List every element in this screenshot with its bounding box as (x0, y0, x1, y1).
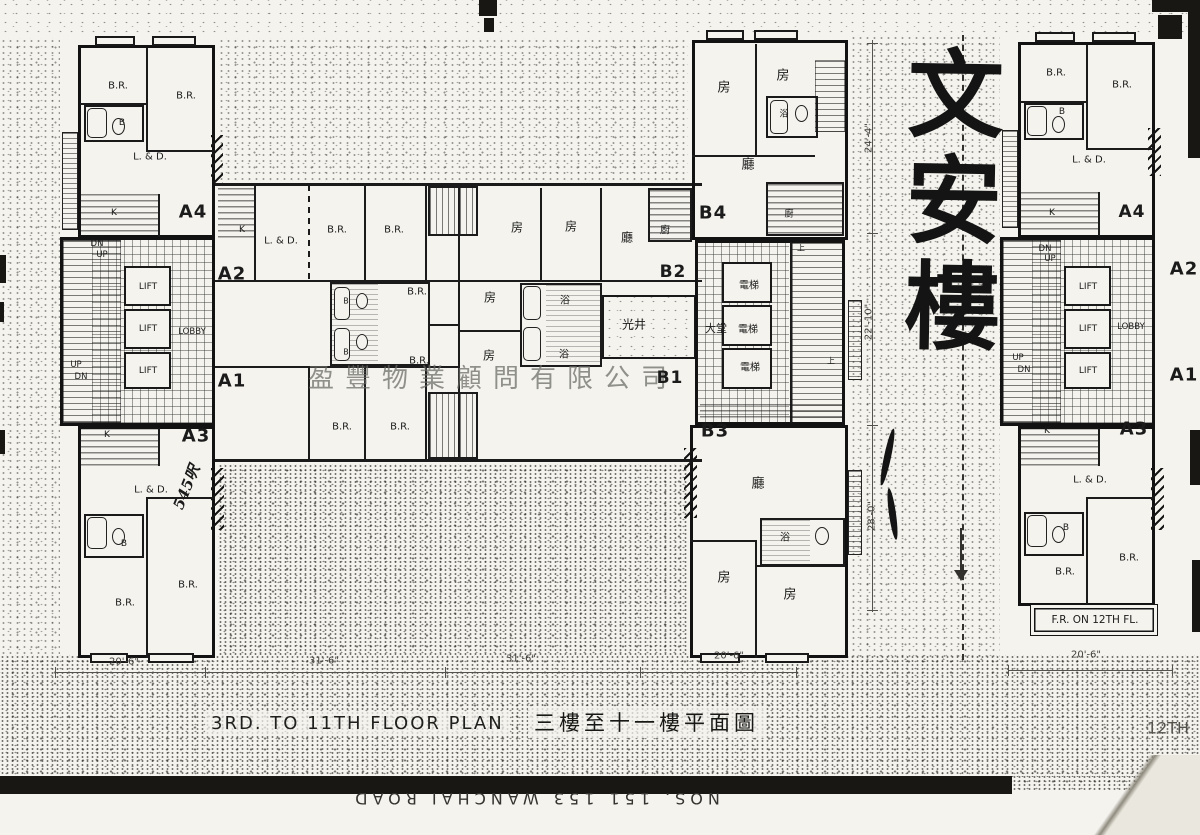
rp-br1: B.R. (1046, 68, 1066, 79)
b3-liv: 廳 (751, 473, 764, 492)
a4-ld: L. & D. (133, 152, 167, 163)
a3-b: B (121, 539, 127, 549)
b2-liv: 廳 (621, 229, 633, 246)
b4-kit: 廚 (784, 207, 793, 220)
a4-k: K (111, 208, 117, 218)
mid-b2: B (343, 348, 349, 357)
unit-b1: B1 (657, 368, 684, 388)
rp-k2: K (1044, 426, 1050, 436)
fr-note: F.R. ON 12TH FL. (1052, 614, 1139, 626)
rp-br4: B.R. (1055, 567, 1075, 578)
rp-lift3: LIFT (1079, 366, 1097, 376)
b2-r1: 房 (511, 219, 523, 236)
a1-br1: B.R. (332, 422, 352, 433)
hall: 大堂 (705, 320, 727, 336)
unit-a1: A1 (218, 371, 246, 392)
lift-3: LIFT (139, 366, 157, 376)
a4-dn: DN (91, 239, 104, 249)
b3-r2: 房 (783, 584, 796, 603)
rp-k1: K (1049, 208, 1055, 218)
rp-dn2: DN (1018, 365, 1031, 375)
dim-20-6-b: 20'-6" (714, 651, 744, 662)
a2-ld: L. & D. (264, 236, 298, 247)
a3-ld: L. & D. (134, 485, 168, 496)
scanned-floor-plan-page: 文安樓 盈豐物業顧問有限公司 3RD. TO 11TH FLOOR PLAN 三… (0, 0, 1200, 835)
rp-a4: A4 (1119, 202, 1146, 222)
rp-lift2: LIFT (1079, 324, 1097, 334)
b2-kit: 廚 (660, 222, 670, 237)
rp-dn1: DN (1039, 244, 1052, 254)
a3-br2: B.R. (115, 598, 135, 609)
mid-br1: B.R. (407, 287, 427, 298)
rp-br2: B.R. (1112, 80, 1132, 91)
b4-r2: 房 (776, 65, 789, 84)
unit-b2: B2 (660, 262, 687, 282)
dim-20-6-c: 20'-6" (1071, 650, 1101, 661)
stair-up1: 上 (797, 243, 805, 254)
rp-lift1: LIFT (1079, 282, 1097, 292)
b4-liv: 廳 (741, 154, 754, 173)
rp-up1: UP (1044, 254, 1055, 264)
core-dn: DN (75, 372, 88, 382)
mid-b1: B (343, 297, 349, 306)
unit-b3: B3 (701, 421, 729, 442)
note-545: 545呎 (168, 462, 205, 513)
b1-bath2: 浴 (559, 346, 569, 361)
rp-a2: A2 (1170, 259, 1198, 280)
dim-24-4: 24'-4" (864, 123, 875, 153)
core-up: UP (70, 360, 81, 370)
a4-br1: B.R. (108, 81, 128, 92)
a3-k: K (104, 430, 110, 440)
unit-a4: A4 (179, 202, 207, 223)
rp-br3: B.R. (1119, 553, 1139, 564)
a2-k: K (239, 225, 245, 235)
rp-b1: B (1059, 107, 1065, 117)
lift-1: LIFT (139, 282, 157, 292)
lift-2: LIFT (139, 324, 157, 334)
dim-31-6-b: 31'-6" (506, 654, 536, 665)
rp-b2: B (1063, 523, 1069, 533)
lobby: LOBBY (178, 327, 206, 337)
stair-up2: 上 (827, 356, 835, 367)
rp-a1: A1 (1170, 365, 1198, 386)
b2-r2: 房 (565, 218, 577, 235)
lightwell: 光井 (622, 316, 646, 333)
unit-b4: B4 (699, 203, 727, 224)
unit-a2: A2 (218, 264, 246, 285)
dim-28-0: 28'-0" (867, 501, 878, 531)
elev-2: 電梯 (738, 321, 758, 336)
dim-31-6-a: 31'-6" (309, 656, 339, 667)
b1-bath1: 浴 (560, 292, 570, 307)
mid-br2: B.R. (409, 356, 429, 367)
rp-a3: A3 (1120, 419, 1148, 440)
dim-22-10: 22'-10" (864, 304, 875, 340)
labels-layer: B.R.B.R.BL. & D.KA4DNUPLIFTLIFTLIFTLOBBY… (0, 0, 1200, 835)
rp-lobby: LOBBY (1117, 322, 1145, 332)
a4-br2: B.R. (176, 91, 196, 102)
a2-br2: B.R. (384, 225, 404, 236)
corner-12th: 12TH (1147, 719, 1189, 738)
elev-1: 電梯 (739, 277, 759, 292)
a2-br1: B.R. (327, 225, 347, 236)
a4-b: B (119, 118, 125, 128)
rp-ld1: L. & D. (1072, 155, 1106, 166)
b1-r2: 房 (483, 347, 495, 364)
dim-20-6-a: 20'-6" (109, 657, 139, 668)
b1-r1: 房 (484, 289, 496, 306)
a1-br2: B.R. (390, 422, 410, 433)
a3-br1: B.R. (178, 580, 198, 591)
rp-up2: UP (1012, 353, 1023, 363)
rp-ld2: L. & D. (1073, 475, 1107, 486)
b3-bath: 浴 (780, 529, 790, 544)
b4-bath: 浴 (779, 107, 788, 120)
b4-r1: 房 (717, 77, 730, 96)
elev-3: 電梯 (740, 359, 760, 374)
unit-a3: A3 (182, 426, 210, 447)
a4-up: UP (96, 250, 107, 260)
b3-r1: 房 (717, 567, 730, 586)
